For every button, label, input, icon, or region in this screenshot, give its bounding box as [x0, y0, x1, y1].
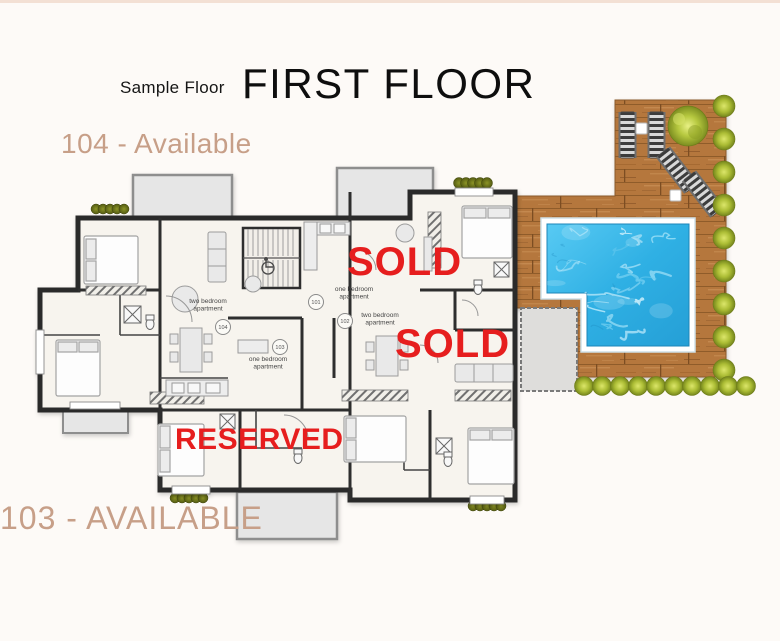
terrace — [521, 308, 577, 391]
status-label-104-available: 104 - Available — [61, 128, 252, 160]
svg-text:103: 103 — [275, 345, 284, 351]
floor-plan-poster: Sample Floor FIRST FLOOR 104 - Available… — [0, 0, 780, 641]
svg-text:102: 102 — [340, 319, 349, 325]
floor-subtitle: Sample Floor — [120, 78, 225, 98]
svg-text:104: 104 — [218, 325, 227, 331]
svg-text:one bedroomapartment: one bedroomapartment — [335, 286, 373, 301]
side-table — [670, 190, 681, 201]
status-label-sold-middle: SOLD — [395, 322, 510, 367]
status-label-sold-top: SOLD — [347, 240, 462, 285]
large-tree — [668, 106, 708, 146]
status-label-103-available: 103 - AVAILABLE — [0, 500, 263, 537]
status-label-reserved: RESERVED — [175, 423, 344, 457]
side-table — [636, 123, 647, 134]
svg-text:two bedroomapartment: two bedroomapartment — [361, 312, 399, 327]
svg-text:two bedroomapartment: two bedroomapartment — [189, 298, 227, 313]
page-title: FIRST FLOOR — [242, 60, 535, 108]
svg-text:one bedroomapartment: one bedroomapartment — [249, 356, 287, 371]
svg-text:101: 101 — [311, 300, 320, 306]
